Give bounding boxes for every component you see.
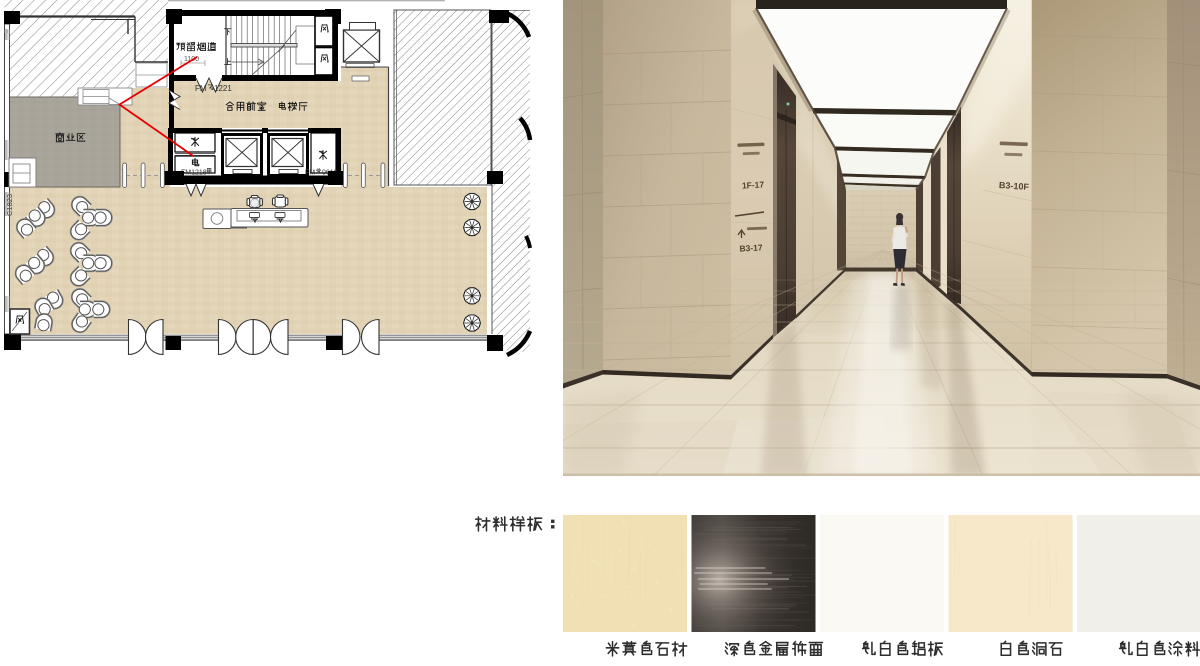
svg-text:FM: FM [305,170,315,177]
svg-text:1221: 1221 [214,84,232,93]
svg-text:FM1218: FM1218 [181,170,207,177]
svg-text:C1823: C1823 [5,194,14,216]
svg-text:1F-17: 1F-17 [742,179,765,190]
svg-text:FM: FM [195,84,207,93]
svg-text:B3-17: B3-17 [739,242,763,253]
svg-text:B3-10F: B3-10F [999,180,1030,192]
